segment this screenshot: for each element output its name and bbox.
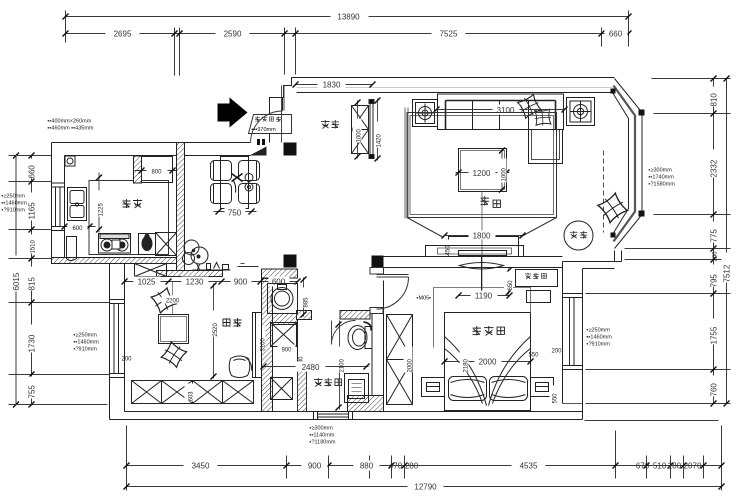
svg-text:1165: 1165 — [28, 202, 37, 220]
svg-text:670: 670 — [636, 462, 650, 471]
svg-text:1730: 1730 — [28, 334, 37, 352]
svg-text:810: 810 — [710, 93, 719, 107]
svg-text:3100: 3100 — [497, 106, 515, 115]
svg-text:775: 775 — [710, 229, 719, 243]
svg-text:1830: 1830 — [323, 81, 341, 90]
svg-text:▪≥250mm: ▪≥250mm — [587, 328, 611, 334]
svg-text:280: 280 — [405, 462, 419, 471]
svg-text:▪?1580mm: ▪?1580mm — [649, 182, 676, 188]
svg-text:2070: 2070 — [684, 462, 702, 471]
svg-text:795: 795 — [710, 274, 719, 288]
svg-text:2590: 2590 — [224, 30, 242, 39]
svg-text:2100: 2100 — [340, 358, 346, 372]
svg-text:2332: 2332 — [710, 159, 719, 177]
svg-text:▪▪▪970mm: ▪▪▪970mm — [252, 127, 277, 133]
svg-text:900: 900 — [281, 348, 292, 354]
svg-text:▪▪1460mm: ▪▪1460mm — [74, 340, 100, 346]
svg-text:3450: 3450 — [192, 462, 210, 471]
svg-text:▪≥300mm: ▪≥300mm — [649, 168, 673, 174]
svg-text:▪≥250mm: ▪≥250mm — [74, 333, 98, 339]
svg-text:280: 280 — [668, 462, 682, 471]
svg-text:2695: 2695 — [114, 30, 132, 39]
svg-text:2200: 2200 — [166, 299, 180, 305]
svg-text:2000: 2000 — [479, 358, 497, 367]
svg-text:650: 650 — [508, 280, 514, 291]
svg-text:510: 510 — [653, 462, 667, 471]
svg-text:▪▪1460mm: ▪▪1460mm — [2, 201, 28, 207]
svg-text:2520: 2520 — [213, 322, 219, 336]
svg-text:260: 260 — [713, 251, 719, 262]
svg-text:4535: 4535 — [520, 462, 538, 471]
svg-text:815: 815 — [28, 277, 37, 291]
svg-text:7525: 7525 — [440, 30, 458, 39]
svg-text:755: 755 — [28, 385, 37, 399]
svg-text:13890: 13890 — [337, 13, 360, 22]
svg-text:1190: 1190 — [475, 292, 493, 301]
svg-text:2480: 2480 — [302, 363, 320, 372]
svg-text:1025: 1025 — [138, 278, 156, 287]
svg-text:660: 660 — [609, 30, 623, 39]
svg-text:7512: 7512 — [723, 264, 732, 282]
svg-text:▪≥300mm: ▪≥300mm — [310, 426, 334, 432]
svg-text:▪?910mm: ▪?910mm — [2, 208, 26, 214]
svg-text:▪≥250mm: ▪≥250mm — [2, 194, 26, 200]
svg-text:▪▪1740mm: ▪▪1740mm — [649, 175, 675, 181]
svg-text:▪?910mm: ▪?910mm — [74, 347, 98, 353]
svg-text:885: 885 — [304, 297, 310, 308]
svg-text:1510: 1510 — [31, 239, 37, 253]
svg-text:▪▪1140mm: ▪▪1140mm — [310, 433, 335, 439]
svg-text:900: 900 — [234, 278, 248, 287]
svg-text:1230: 1230 — [186, 278, 204, 287]
svg-text:1225: 1225 — [99, 202, 105, 216]
svg-text:1200: 1200 — [473, 169, 491, 178]
svg-text:600: 600 — [72, 226, 83, 232]
svg-text:1420: 1420 — [377, 133, 383, 147]
svg-text:1755: 1755 — [710, 326, 719, 344]
svg-text:12790: 12790 — [414, 483, 437, 492]
svg-text:▪M05▪: ▪M05▪ — [417, 296, 432, 302]
svg-text:1000: 1000 — [357, 128, 363, 142]
svg-text:550: 550 — [529, 353, 540, 359]
svg-text:▪?910mm: ▪?910mm — [587, 342, 611, 348]
svg-text:800: 800 — [151, 170, 162, 176]
svg-text:600: 600 — [272, 278, 286, 287]
svg-text:200: 200 — [122, 357, 133, 363]
svg-text:900: 900 — [308, 462, 322, 471]
svg-text:▪▪400mm×260mm: ▪▪400mm×260mm — [48, 119, 92, 125]
svg-text:200: 200 — [552, 349, 563, 355]
svg-text:880: 880 — [360, 462, 374, 471]
svg-text:750: 750 — [228, 209, 242, 218]
svg-text:760: 760 — [710, 383, 719, 397]
svg-text:1800: 1800 — [473, 232, 491, 241]
svg-text:2180: 2180 — [464, 358, 470, 372]
svg-text:603: 603 — [189, 391, 195, 402]
svg-text:▪▪460mm ▪▪435mm: ▪▪460mm ▪▪435mm — [48, 126, 94, 132]
svg-text:470: 470 — [389, 462, 403, 471]
svg-text:660: 660 — [28, 165, 37, 179]
svg-text:▪?1180mm: ▪?1180mm — [310, 440, 336, 446]
svg-text:6015: 6015 — [12, 272, 21, 290]
svg-text:2000: 2000 — [408, 358, 414, 372]
svg-text:550: 550 — [553, 393, 559, 404]
svg-text:1000: 1000 — [502, 167, 508, 181]
svg-text:▪▪1460mm: ▪▪1460mm — [587, 335, 613, 341]
